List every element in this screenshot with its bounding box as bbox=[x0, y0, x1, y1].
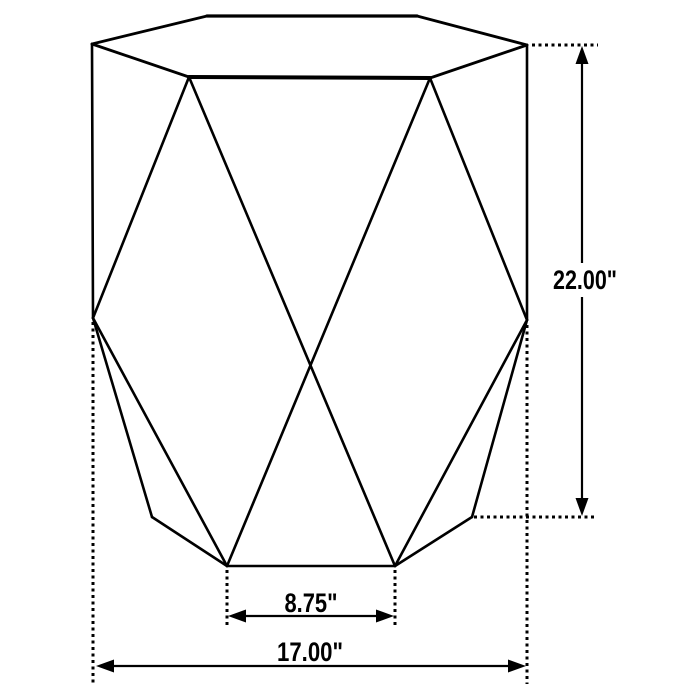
tabletop-edge-front-right bbox=[430, 45, 527, 78]
lower-facet-lines bbox=[93, 318, 527, 566]
inner-width-arrow-right bbox=[376, 610, 394, 623]
facet-line-rightmid-to-bottomright bbox=[395, 320, 527, 566]
upper-facet-lines bbox=[93, 77, 527, 566]
base-edge-left-upper bbox=[93, 318, 152, 517]
facet-diagonal-right-to-bottomleft bbox=[227, 78, 430, 566]
base-edge-left-lower bbox=[152, 517, 227, 566]
tabletop-edge-front bbox=[189, 77, 430, 78]
height-dimension-label: 22.00" bbox=[553, 265, 617, 295]
tabletop-edge-back-right bbox=[417, 16, 527, 45]
dimension-overall-width: 17.00" bbox=[93, 322, 527, 684]
base-edge-right-upper bbox=[472, 320, 527, 517]
inner-width-dimension-label: 8.75" bbox=[285, 588, 338, 618]
height-arrow-up bbox=[576, 46, 589, 64]
base-edge-right-lower bbox=[395, 517, 472, 566]
overall-width-dimension-label: 17.00" bbox=[277, 637, 343, 667]
facet-line-leftmid-to-bottomleft bbox=[93, 318, 227, 566]
side-edges bbox=[92, 44, 527, 320]
tabletop-rim bbox=[92, 16, 527, 78]
inner-width-arrow-left bbox=[228, 610, 246, 623]
facet-line-topleft-to-leftmid bbox=[93, 77, 189, 318]
dimension-diagram-canvas: 22.00" 8.75" 17.00" bbox=[0, 0, 700, 700]
table-dimension-diagram: 22.00" 8.75" 17.00" bbox=[0, 0, 700, 700]
dimension-inner-width: 8.75" bbox=[227, 570, 395, 628]
overall-width-arrow-right bbox=[508, 660, 526, 673]
facet-diagonal-left-to-bottomright bbox=[189, 77, 395, 566]
table-outline bbox=[92, 16, 527, 566]
tabletop-edge-front-left bbox=[92, 44, 189, 77]
tabletop-edge-back-left bbox=[92, 16, 207, 44]
dimension-height: 22.00" bbox=[474, 45, 617, 517]
left-side-edge bbox=[92, 44, 93, 318]
facet-line-topright-to-rightmid bbox=[430, 78, 527, 320]
height-arrow-down bbox=[576, 498, 589, 516]
overall-width-arrow-left bbox=[96, 660, 114, 673]
